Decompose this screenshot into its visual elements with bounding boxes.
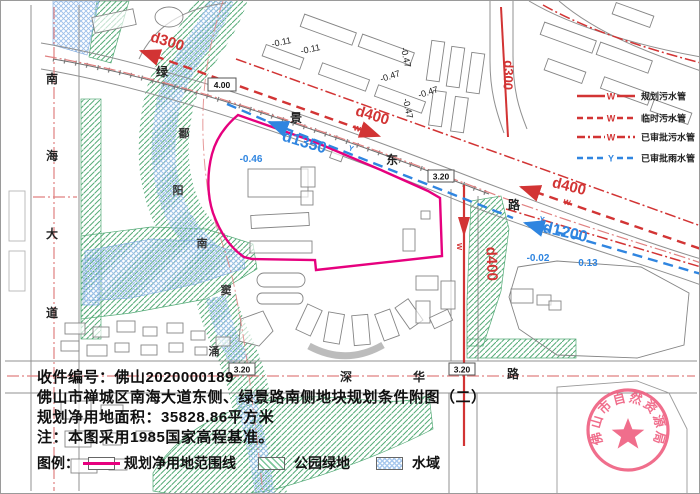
legend-symbol: W [607, 133, 616, 143]
river-name-char: 窦 [221, 283, 232, 297]
river-name-char: 南 [197, 236, 208, 250]
road-name-lvjing: 景 [290, 111, 302, 125]
elevation-label: -0.11 [300, 42, 322, 56]
road-name-nanhai: 大 [46, 226, 58, 241]
datum-note: 注：本图采用1985国家高程基准。 [37, 428, 487, 448]
legend-symbol: W [607, 92, 616, 102]
elevation-label: -0.11 [271, 35, 293, 49]
legend-label: 已审批污水管 [641, 132, 695, 143]
park-green-swatch [258, 457, 285, 470]
sewer-flow-marker: W [563, 197, 573, 208]
boundary-line-label: 规划净用地范围线 [124, 453, 236, 473]
boundary-line-swatch [88, 457, 115, 470]
legend-label: 规划污水管 [641, 91, 686, 102]
water-area-swatch [376, 457, 403, 470]
seal-star-icon [612, 418, 645, 449]
legend-symbol: W [607, 114, 616, 124]
road-name-nanhai: 海 [46, 148, 58, 163]
spot-level: 3.20 [433, 172, 450, 182]
sewer-flow-marker: W [455, 243, 464, 251]
net-land-area: 规划净用地面积：35828.86平方米 [37, 408, 487, 428]
map-legend: 图例： 规划净用地范围线 公园绿地 水域 [37, 453, 440, 473]
pipe-flow-markers: W W W Y Y [347, 123, 572, 251]
pipe-label-d300: d300 [500, 60, 516, 90]
official-seal: 佛山市自然资源局 [587, 389, 668, 470]
title-block: 收件编号：佛山2020000189 佛山市禅城区南海大道东侧、绿景路南侧地块规划… [37, 368, 487, 448]
pipe-label-d1200: d1200 [541, 219, 589, 246]
elevation-label: -0.47 [379, 68, 402, 84]
river-name-char: 涌 [209, 344, 220, 358]
pipe-label-d400: d400 [550, 174, 587, 199]
elevation-label-blue: 0.13 [578, 258, 598, 269]
legend-symbol: Y [608, 154, 614, 164]
river-name-char: 阳 [173, 183, 184, 197]
pipe-label-d400: d400 [482, 246, 500, 281]
storm-flow-marker: Y [347, 143, 354, 153]
road-name-lvjing: 绿 [156, 64, 169, 79]
planning-map-page: W W W Y Y d300 d400 d400 d400 d300 d1350… [0, 0, 700, 494]
road-name-nanhai: 道 [46, 305, 58, 320]
road-name-nanhai: 南 [46, 71, 58, 86]
road-name-shenhua: 路 [507, 366, 520, 381]
road-name-lvjing: 路 [508, 197, 521, 212]
map-legend-title: 图例： [37, 453, 79, 473]
park-green-label: 公园绿地 [294, 453, 350, 473]
elevation-label-blue: -0.02 [527, 253, 550, 264]
spot-level: 4.00 [214, 80, 231, 90]
receipt-number: 收件编号：佛山2020000189 [37, 368, 487, 388]
elevation-label-blue: -0.46 [240, 154, 263, 165]
legend-label: 临时污水管 [641, 113, 686, 124]
river-name-char: 鄱 [178, 126, 190, 140]
water-area-label: 水域 [412, 453, 440, 473]
road-name-lvjing: 东 [386, 152, 398, 167]
elevation-label: -0.47 [399, 46, 413, 68]
drawing-title: 佛山市禅城区南海大道东侧、绿景路南侧地块规划条件附图（二） [37, 388, 487, 408]
legend-label: 已审批雨水管 [641, 153, 695, 164]
